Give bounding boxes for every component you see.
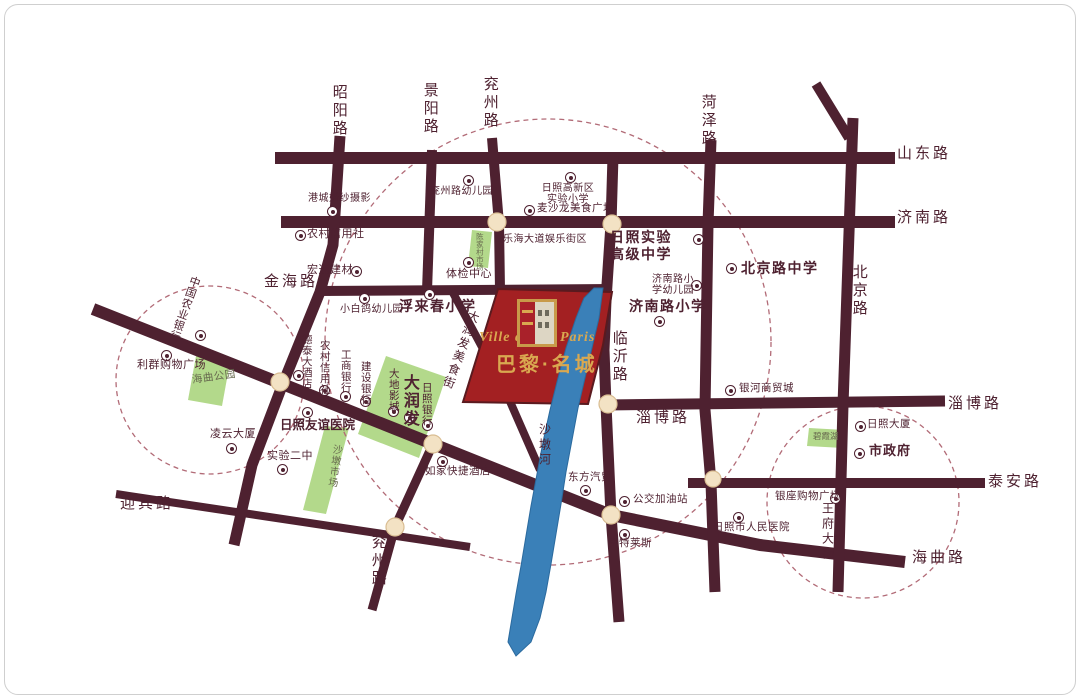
poi-friendship-hospital: 日照友谊医院 (280, 418, 355, 432)
poi-no2-middle-school: 实验二中 (267, 450, 313, 462)
poi-beijing-rd-middle: 北京路中学 (741, 261, 819, 277)
poi-fulaichun-primary: 浮来春小学 (399, 299, 477, 315)
poi-wedding-photo: 港城婚纱摄影 (308, 193, 371, 204)
area-label-bixia-lake: 碧霞湖 (813, 432, 839, 442)
road-jingyang (427, 150, 432, 291)
poi-rizhao-exp-high-school: 日照实验 高级中学 (610, 229, 682, 263)
poi-ccb-bank: 建设银行 (359, 361, 371, 405)
poi-marker-icon (359, 293, 370, 304)
poi-marker-icon (693, 234, 704, 245)
road-label-zhaoyang: 昭阳路 (330, 84, 347, 138)
poi-jinan-rd-kg-line1: 济南路小 (652, 274, 694, 285)
poi-dongfang-auto: 东方汽贸 (568, 472, 612, 484)
location-map: 昭阳路 景阳路 兖州路 菏泽路 山东路 济南路 北京路 金海路 临沂路 淄博路 … (0, 0, 1080, 699)
road-label-beijing: 北京路 (850, 264, 867, 318)
poi-marker-icon (725, 385, 736, 396)
poi-rujia-hotel: 如家快捷酒店 (425, 466, 491, 478)
poi-rizhao-exp-high-line1: 日照实验 (610, 229, 672, 245)
road-northeast-stub (816, 84, 849, 138)
poi-darunfa: 大润发 (400, 374, 418, 428)
poi-marker-icon (565, 172, 576, 183)
road-label-yanzhou-top: 兖州路 (481, 76, 498, 130)
area-label-chenjiacun-market: 陈家村市场 (475, 233, 483, 271)
roundabout (705, 471, 721, 487)
poi-marker-icon (463, 175, 474, 186)
property-name-en-right: Paris (560, 330, 595, 346)
roundabout (602, 506, 620, 524)
roundabout (424, 435, 442, 453)
poi-marker-icon (854, 448, 865, 459)
poi-jinan-rd-primary: 济南路小学 (629, 299, 707, 315)
poi-marker-icon (580, 485, 591, 496)
poi-credit-union-south: 农村信用社 (318, 340, 330, 395)
poi-marker-icon (226, 443, 237, 454)
road-label-jinan: 济南路 (897, 210, 951, 227)
roundabout (271, 373, 289, 391)
poi-people-hospital: 日照市人民医院 (713, 522, 790, 534)
road-label-haiqu: 海曲路 (912, 550, 966, 567)
poi-icbc-bank: 工商银行 (339, 349, 351, 393)
river-label: 沙墩河 (537, 423, 550, 468)
poi-detai-hotel: 德泰大酒店 (300, 334, 312, 389)
road-label-taian: 泰安路 (988, 474, 1042, 491)
road-label-jinhai: 金海路 (264, 274, 318, 291)
poi-physical-exam-center: 体检中心 (446, 268, 492, 280)
poi-rizhao-tower: 日照大厦 (867, 419, 911, 431)
poi-marker-icon (524, 205, 535, 216)
poi-kindergarten-yanzhou: 兖州路幼儿园 (430, 186, 493, 197)
poi-rizhao-exp-high-line2: 高级中学 (610, 246, 672, 262)
road-zibo (606, 401, 945, 405)
poi-dadi-cinema: 大地影城 (387, 368, 399, 412)
poi-jinan-rd-kg-line2: 学幼儿园 (652, 285, 694, 296)
poi-marker-icon (277, 464, 288, 475)
poi-lehai-entertainment: 乐海大道娱乐街区 (503, 234, 587, 245)
road-label-wangfu: 王府大街 (820, 502, 833, 562)
poi-jinan-rd-kindergarten: 济南路小 学幼儿园 (652, 274, 698, 296)
poi-marker-icon (619, 496, 630, 507)
road-label-yingbin: 迎宾路 (120, 496, 174, 513)
poi-city-government: 市政府 (869, 444, 911, 459)
poi-yinhe-mall: 银河商贸城 (739, 383, 794, 395)
poi-marker-icon (295, 230, 306, 241)
poi-marker-icon (463, 257, 474, 268)
poi-marker-icon (302, 407, 313, 418)
brand-logo-red-panel (520, 302, 535, 344)
poi-rizhao-bank: 日照银行 (420, 382, 432, 426)
brand-logo (517, 299, 557, 347)
property-name-cn: 巴黎·名城 (496, 348, 598, 377)
poi-yinzuo-plaza: 银座购物广场 (775, 491, 841, 503)
shadun-market-area (303, 426, 349, 514)
road-label-linyi: 临沂路 (610, 330, 627, 384)
poi-hongtong-materials: 宏通建材 (307, 264, 353, 276)
road-label-zibo-right: 淄博路 (948, 396, 1002, 413)
roundabout (386, 518, 404, 536)
road-label-jingyang: 景阳路 (421, 82, 438, 136)
poi-marker-icon (726, 263, 737, 274)
poi-marker-icon (855, 421, 866, 432)
poi-lingyun-tower: 凌云大厦 (210, 428, 256, 440)
poi-xiaobaige-kindergarten: 小白鸽幼儿园 (340, 304, 403, 315)
poi-marker-icon (654, 316, 665, 327)
road-beijing-wangfu (838, 118, 853, 592)
roundabout (488, 213, 506, 231)
poi-maishalong-plaza: 麦沙龙美食广场 (537, 203, 614, 215)
poi-gaoxin-primary-line1: 日照高新区 (542, 183, 595, 194)
poi-bus-gas-station: 公交加油站 (633, 494, 688, 506)
poi-marker-icon (327, 206, 338, 217)
brand-logo-building-icon (535, 302, 554, 344)
road-label-heze: 菏泽路 (699, 94, 716, 148)
poi-marker-icon (195, 330, 206, 341)
road-label-shandong: 山东路 (897, 146, 951, 163)
roundabout (599, 395, 617, 413)
road-label-zibo-mid: 淄博路 (636, 410, 690, 427)
road-label-yanzhou-bottom: 兖州路 (369, 534, 386, 588)
poi-credit-union-north: 农村信用社 (307, 228, 365, 240)
poi-liqun-plaza: 利群购物广场 (137, 359, 206, 371)
poi-outlets: 奥特莱斯 (608, 538, 652, 550)
